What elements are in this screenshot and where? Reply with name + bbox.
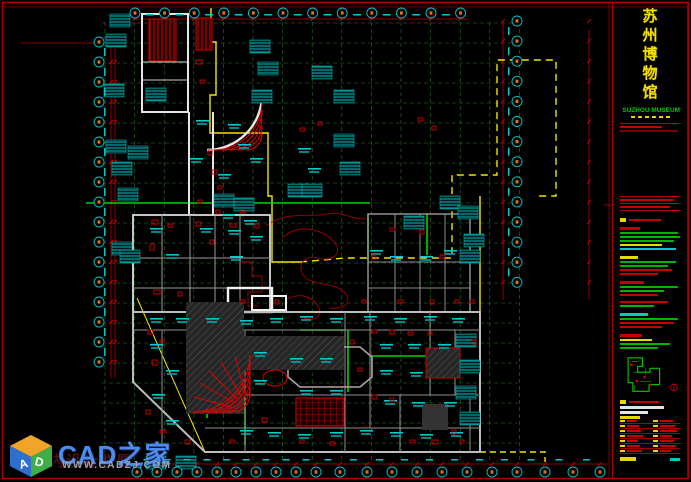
axis-bubble-label [98,360,101,363]
dim-text [205,14,213,16]
dim-text [442,14,450,16]
dim-text [556,459,563,461]
axis-bubble-label [98,120,101,123]
room-label [245,223,255,225]
dim-text [263,459,270,461]
dim-text [104,308,106,316]
label-block [460,250,480,263]
red-annotation [168,224,173,227]
axis-bubble-label [391,470,394,473]
room-label [300,316,313,318]
title-block: 苏州博物馆 SUZHOU MUSEUM [612,3,688,478]
red-annotation [318,122,322,125]
axis-bubble-label [516,100,519,103]
room-label [240,320,253,322]
red-annotation [362,300,366,303]
axis-bubble-label [98,140,101,143]
axis-bubble-label [516,220,519,223]
room-label [244,220,257,222]
dim-text [235,14,243,16]
dim-text [508,188,510,196]
text-line-bar [620,286,678,288]
room-label [255,355,265,357]
dim-text [104,228,106,236]
label-block [456,386,476,399]
red-annotation [410,440,415,443]
red-annotation [196,222,201,226]
red-annotation [432,126,436,130]
axis-bubble-label [98,300,101,303]
room-label [444,250,457,252]
room-label [390,432,403,434]
dim-text [508,67,510,75]
axis-bubble-label [516,60,519,63]
label-block [312,66,332,79]
label-block [110,14,130,27]
dim-text [383,14,391,16]
room-label [301,319,311,321]
dim-text [350,459,357,461]
axis-bubble-label [295,470,298,473]
text-line-bar [620,240,674,242]
floor-plan [0,0,691,482]
dim-text [104,88,106,96]
room-label [452,318,465,320]
dim-text [508,148,510,156]
axis-bubble-label [275,470,278,473]
red-annotation [150,244,154,250]
axis-bubble-label [98,200,101,203]
axis-bubble-label [98,240,101,243]
label-block [340,162,360,175]
red-annotation [350,340,354,344]
room-label [222,214,235,216]
red-annotation [200,80,205,83]
room-label [301,393,311,395]
room-label [254,380,267,382]
room-label [255,383,265,385]
section-header-bar [620,334,642,337]
room-label [177,321,187,323]
axis-bubble-label [416,470,419,473]
axis-bubble-label [400,11,403,14]
room-label [166,420,179,422]
axis-bubble-label [516,281,519,284]
axis-bubble-label [134,11,137,14]
section-header-bar [620,256,638,259]
room-label [238,144,251,146]
axis-bubble-label [459,11,462,14]
dim-text [353,14,361,16]
text-line-bar [620,343,670,345]
room-label [206,318,219,320]
text-line-bar [620,236,680,238]
axis-bubble-label [98,100,101,103]
dim-text [508,128,510,136]
axis-bubble-label [370,11,373,14]
room-label [271,321,281,323]
text-line-bar [620,318,678,320]
room-label [201,231,211,233]
axis-bubble-label [516,120,519,123]
dim-text [104,148,106,156]
dim-text [583,459,590,461]
red-annotation [420,230,424,234]
axis-bubble-label [516,140,519,143]
text-line-bar [620,322,674,324]
room-label [298,148,311,150]
drawing-title-line-1 [620,406,664,409]
axis-bubble-label [311,11,314,14]
room-label [381,347,391,349]
room-label [152,394,165,396]
dim-text [104,188,106,196]
dim-text [104,288,106,296]
room-label [380,370,393,372]
room-label [269,435,279,437]
room-label [167,423,177,425]
dim-text [294,14,302,16]
project-title-cn: 苏州博物馆 [620,9,680,101]
room-label [308,168,321,170]
title-cn-char: 苏 [642,9,657,25]
landscape-contours [240,213,366,319]
room-label [438,344,451,346]
title-cn-char: 州 [642,28,657,44]
dim-text [104,108,106,116]
room-label [394,318,407,320]
axis-bubble-label [516,160,519,163]
label-block [146,88,166,101]
dim-text [508,47,510,55]
room-label [229,127,239,129]
room-label [230,256,243,258]
scale-row [620,457,680,461]
room-label [268,432,281,434]
drawing-title-line-2 [620,411,648,414]
text-line-bar [620,269,672,271]
walls [133,14,480,452]
red-annotation [216,210,220,214]
dim-text [104,168,106,176]
room-label [385,403,395,405]
label-block [252,90,272,103]
room-label [200,228,213,230]
room-label [453,321,463,323]
axis-bubble-label [98,160,101,163]
label-block [456,334,476,347]
label-block [214,194,234,207]
label-block [258,62,278,75]
room-label [331,435,341,437]
dim-text [508,268,510,276]
red-annotation [398,300,403,303]
axis-bubble-label [516,19,519,22]
axis-bubble-label [430,11,433,14]
room-label [166,254,179,256]
axis-bubble-label [516,80,519,83]
red-annotation [330,442,335,445]
title-cn-char: 物 [642,66,657,82]
axis-bubble-label [98,60,101,63]
red-annotation [218,186,222,189]
room-label [150,318,163,320]
axis-bubble-label [572,470,575,473]
room-label [197,123,207,125]
red-annotation [262,418,267,422]
label-block [112,162,132,175]
red-annotation [358,368,362,371]
axis-bubble-label [599,470,602,473]
label-block [440,196,460,209]
cad-drawing-sheet: 苏州博物馆 SUZHOU MUSEUM 室内设计联盟 [0,0,691,482]
red-annotation [390,228,395,231]
dim-text [323,14,331,16]
room-label [411,375,421,377]
room-label [390,256,403,258]
axis-bubble-label [163,11,166,14]
red-annotation [210,240,214,244]
axis-bubble-label [441,470,444,473]
dimension-ticks [109,17,602,466]
axis-bubble-label [222,11,225,14]
red-annotation [178,292,182,296]
room-label [251,239,261,241]
dim-text [508,87,510,95]
axis-bubble-label [339,470,342,473]
room-label [166,370,179,372]
room-label [420,434,433,436]
axis-bubble-label [193,11,196,14]
dim-text [401,459,408,461]
room-label [391,259,401,261]
red-annotation [275,300,279,304]
dim-text [104,208,106,216]
room-label [391,435,401,437]
dim-text [508,168,510,176]
room-label [229,233,239,235]
red-annotation [196,60,202,64]
text-line-bar [620,206,670,208]
room-label [330,318,343,320]
room-label [167,373,177,375]
room-label [250,158,263,160]
room-label [360,430,373,432]
room-label [254,352,267,354]
red-annotation [240,210,245,213]
room-label [231,259,241,261]
axis-bubble-label [491,470,494,473]
axis-bubble-label [98,320,101,323]
dim-text [104,248,106,256]
room-label [439,347,449,349]
red-annotation [198,200,202,203]
red-annotation [300,128,305,131]
red-annotation [255,224,259,228]
room-label [207,321,217,323]
room-label [331,321,341,323]
dim-text [501,459,508,461]
room-label [361,433,371,435]
room-label [190,158,203,160]
red-annotation [146,410,150,414]
label-block [118,188,138,201]
label-block [106,34,126,47]
text-line-bar [620,339,652,341]
title-block-fields [620,419,680,454]
key-plan [620,355,682,397]
dim-tick [587,19,591,23]
axis-bubbles [94,8,605,477]
title-block-text-rows [620,118,680,349]
axis-bubble-label [516,241,519,244]
title-cn-char: 馆 [642,85,657,101]
axis-bubble-label [98,260,101,263]
red-annotation [152,360,157,365]
room-label [270,318,283,320]
room-label [409,347,419,349]
room-label [167,257,177,259]
rule [620,123,680,124]
dim-text [376,459,383,461]
room-label [151,321,161,323]
section-header-bar [620,313,648,316]
text-line-bar [620,301,668,303]
room-label [250,236,263,238]
room-label [309,171,319,173]
dim-text [508,248,510,256]
room-label [410,372,423,374]
axis-bubble-label [516,261,519,264]
room-label [219,177,229,179]
room-label [395,321,405,323]
label-block [404,216,424,229]
room-label [228,230,241,232]
axis-bubble-label [516,180,519,183]
label-block [334,90,354,103]
room-label [365,319,375,321]
room-label [298,434,311,436]
rule [620,203,680,204]
dim-text [412,14,420,16]
room-label [330,390,343,392]
room-label [364,316,377,318]
text-line-bar [620,126,662,128]
room-label [299,437,309,439]
rule [620,196,680,197]
red-annotation [390,330,394,334]
dim-text [104,268,106,276]
room-label [413,405,423,407]
label-block [302,184,322,197]
axis-bubble-label [98,220,101,223]
dim-text [508,107,510,115]
dim-text [325,459,332,461]
dim-text [451,459,458,461]
label-block [460,412,480,425]
axis-bubble-label [98,340,101,343]
dim-text [104,328,106,336]
text-line-bar [620,347,658,349]
axis-bubble-label [98,80,101,83]
label-block [250,40,270,53]
title-cn-char: 博 [642,47,657,63]
red-annotation [432,440,438,444]
red-annotation [408,332,413,335]
axis-bubble-label [282,11,285,14]
brand-url: WWW.CADZJ.COM [62,460,172,471]
room-label [196,120,209,122]
watermark: 室内设计联盟 A D CAD之家 WWW.CADZJ.COM [10,433,240,479]
red-annotation [418,118,423,121]
label-block [120,250,140,263]
room-label [380,344,393,346]
label-block [128,146,148,159]
room-label [151,231,161,233]
room-label [153,397,163,399]
dim-text [104,348,106,356]
field-row [620,449,680,454]
room-label [451,435,461,437]
label-block [458,206,478,219]
room-label [240,430,253,432]
room-label [445,253,455,255]
axis-bubble-label [341,11,344,14]
room-label [151,347,161,349]
label-block [334,134,354,147]
text-line-bar [620,199,674,201]
axis-bubble-label [252,11,255,14]
dim-text [175,14,183,16]
room-label [421,259,431,261]
axis-bubble-label [544,470,547,473]
axis-bubble-label [315,470,318,473]
axis-bubble-label [516,200,519,203]
red-annotation [230,224,236,227]
room-label [150,344,163,346]
room-label [299,151,309,153]
dim-text [508,27,510,35]
red-annotation [300,440,304,443]
dim-text [146,14,154,16]
room-label [150,228,163,230]
axis-bubble-label [466,470,469,473]
room-label [425,319,435,321]
label-block [234,198,254,211]
room-label [444,402,457,404]
label-block [106,140,126,153]
room-label [251,161,261,163]
red-annotation [372,395,377,399]
room-label [191,161,201,163]
label-block [464,234,484,247]
red-annotation [455,300,459,303]
room-label [330,432,343,434]
dim-text [508,208,510,216]
room-label [412,402,425,404]
room-label [408,344,421,346]
axis-bubble-label [98,180,101,183]
room-label [424,316,437,318]
room-label [320,358,333,360]
dim-text [104,48,106,56]
section-header-bar [620,281,644,284]
room-label [239,147,249,149]
room-label [218,174,231,176]
room-label [421,437,431,439]
axis-bubble-label [516,470,519,473]
dim-text [243,459,250,461]
